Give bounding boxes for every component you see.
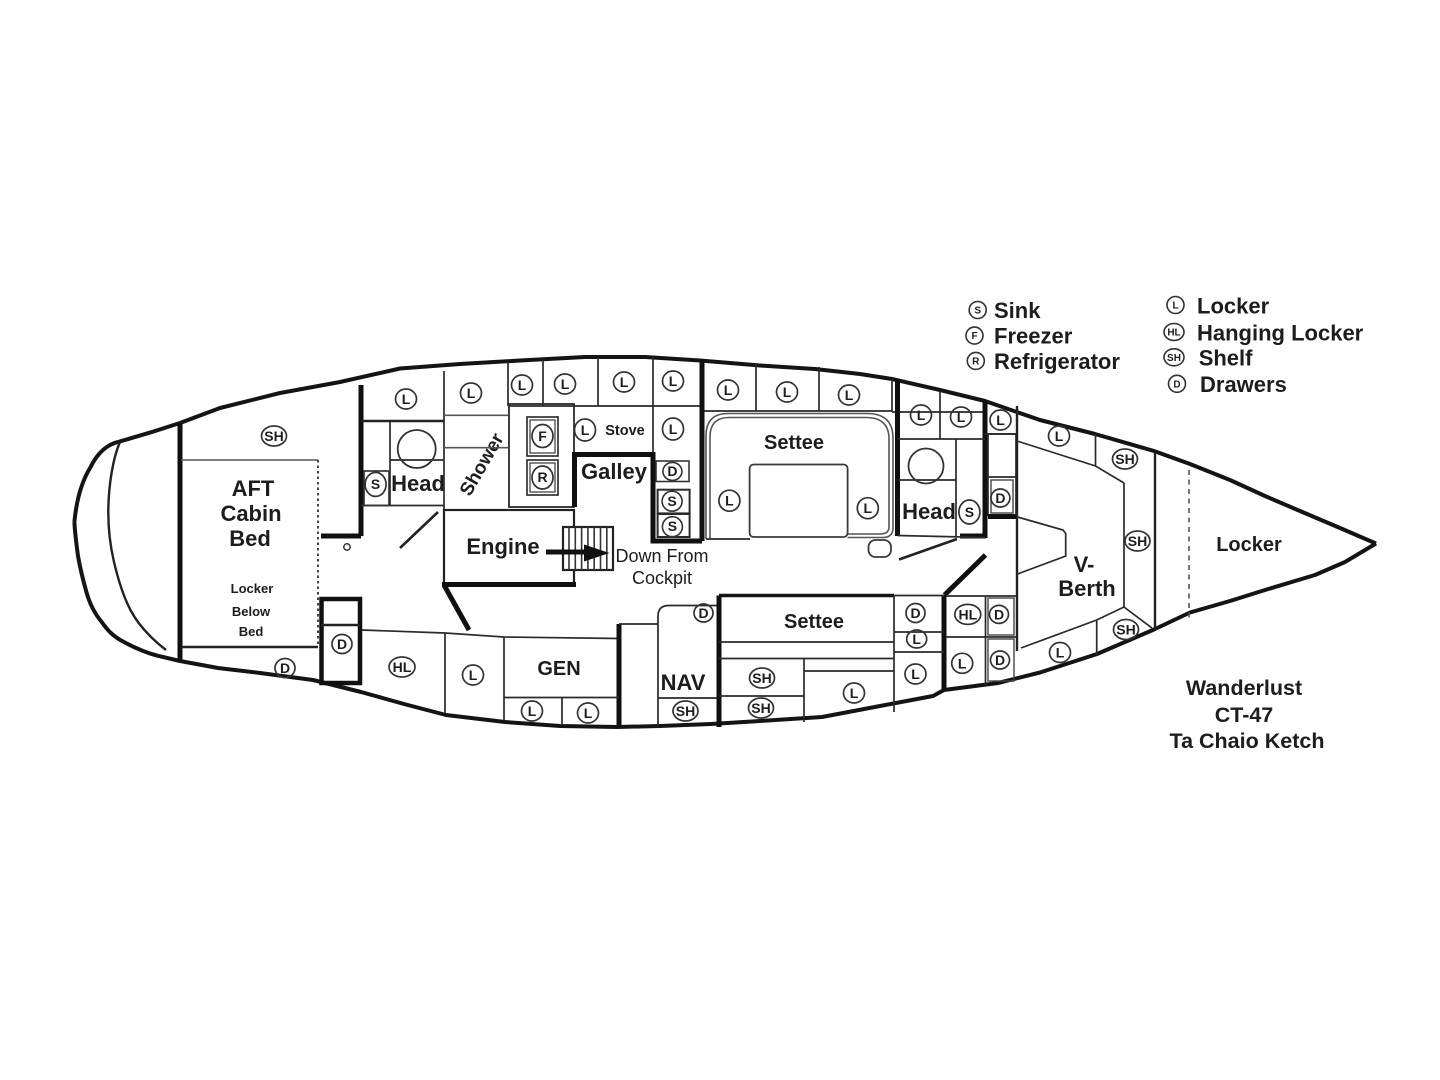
svg-text:L: L [469, 667, 478, 683]
svg-text:SH: SH [752, 670, 771, 686]
svg-text:Refrigerator: Refrigerator [994, 349, 1120, 374]
svg-text:L: L [581, 422, 590, 438]
svg-text:L: L [518, 377, 527, 393]
svg-text:SH: SH [1167, 353, 1181, 364]
svg-text:SH: SH [676, 703, 695, 719]
svg-text:L: L [783, 384, 792, 400]
svg-text:Ta Chaio Ketch: Ta Chaio Ketch [1170, 729, 1325, 753]
svg-text:Cabin: Cabin [220, 501, 281, 526]
svg-text:L: L [561, 376, 570, 392]
svg-text:S: S [965, 504, 974, 520]
svg-text:Cockpit: Cockpit [632, 568, 692, 588]
svg-text:Locker: Locker [231, 581, 274, 596]
svg-text:L: L [402, 391, 411, 407]
svg-text:D: D [995, 490, 1005, 506]
svg-text:SH: SH [264, 428, 283, 444]
svg-text:L: L [528, 703, 537, 719]
svg-text:D: D [994, 606, 1004, 622]
svg-text:Below: Below [232, 604, 271, 619]
svg-text:L: L [1056, 645, 1065, 661]
svg-text:HL: HL [958, 606, 977, 622]
svg-text:F: F [538, 428, 547, 444]
svg-text:HL: HL [1167, 328, 1180, 339]
svg-text:S: S [371, 476, 380, 492]
svg-text:Drawers: Drawers [1200, 372, 1287, 397]
svg-text:D: D [995, 652, 1005, 668]
svg-text:Hanging Locker: Hanging Locker [1197, 321, 1364, 346]
svg-text:D: D [337, 636, 347, 652]
svg-text:SH: SH [1116, 622, 1135, 638]
svg-text:S: S [667, 493, 676, 509]
svg-text:Locker: Locker [1197, 294, 1270, 319]
svg-text:S: S [974, 306, 981, 317]
svg-text:L: L [669, 373, 678, 389]
svg-text:L: L [912, 631, 921, 647]
svg-text:L: L [669, 421, 678, 437]
svg-text:D: D [910, 605, 920, 621]
svg-text:L: L [911, 666, 920, 682]
svg-text:Bed: Bed [229, 526, 271, 551]
svg-text:V-: V- [1074, 552, 1095, 577]
svg-text:Settee: Settee [784, 611, 844, 633]
svg-text:L: L [584, 705, 593, 721]
svg-text:L: L [864, 500, 873, 516]
svg-text:L: L [1172, 301, 1178, 312]
svg-text:S: S [668, 518, 677, 534]
svg-text:L: L [957, 409, 966, 425]
svg-text:Engine: Engine [466, 534, 539, 559]
svg-text:Stove: Stove [605, 423, 645, 439]
svg-text:D: D [1173, 379, 1180, 390]
svg-text:Head: Head [391, 471, 445, 496]
svg-text:L: L [996, 412, 1005, 428]
svg-text:SH: SH [751, 700, 770, 716]
svg-text:L: L [958, 655, 967, 671]
svg-text:Galley: Galley [581, 459, 648, 484]
svg-text:D: D [667, 463, 677, 479]
svg-text:L: L [724, 382, 733, 398]
svg-text:D: D [698, 605, 708, 621]
svg-text:Freezer: Freezer [994, 324, 1073, 349]
svg-text:L: L [845, 387, 854, 403]
svg-text:L: L [850, 685, 859, 701]
svg-text:R: R [537, 469, 547, 485]
svg-text:GEN: GEN [537, 658, 580, 680]
svg-text:L: L [1055, 428, 1064, 444]
svg-text:Settee: Settee [764, 432, 824, 454]
svg-text:Bed: Bed [239, 624, 264, 639]
svg-text:NAV: NAV [661, 670, 706, 695]
svg-text:L: L [467, 385, 476, 401]
svg-text:L: L [725, 493, 734, 509]
svg-text:L: L [620, 374, 629, 390]
svg-text:CT-47: CT-47 [1215, 703, 1274, 727]
svg-text:SH: SH [1128, 533, 1147, 549]
svg-text:Sink: Sink [994, 298, 1041, 323]
svg-text:F: F [971, 331, 977, 342]
svg-text:AFT: AFT [232, 476, 275, 501]
svg-text:D: D [280, 660, 290, 676]
svg-text:Head: Head [902, 499, 956, 524]
svg-text:Locker: Locker [1216, 534, 1282, 556]
svg-text:Down From: Down From [615, 546, 708, 566]
svg-text:Berth: Berth [1058, 576, 1115, 601]
svg-text:Wanderlust: Wanderlust [1186, 676, 1302, 700]
svg-text:Shelf: Shelf [1199, 346, 1253, 371]
svg-text:L: L [917, 407, 926, 423]
svg-text:SH: SH [1115, 451, 1134, 467]
svg-text:HL: HL [393, 659, 412, 675]
svg-text:R: R [972, 356, 980, 367]
